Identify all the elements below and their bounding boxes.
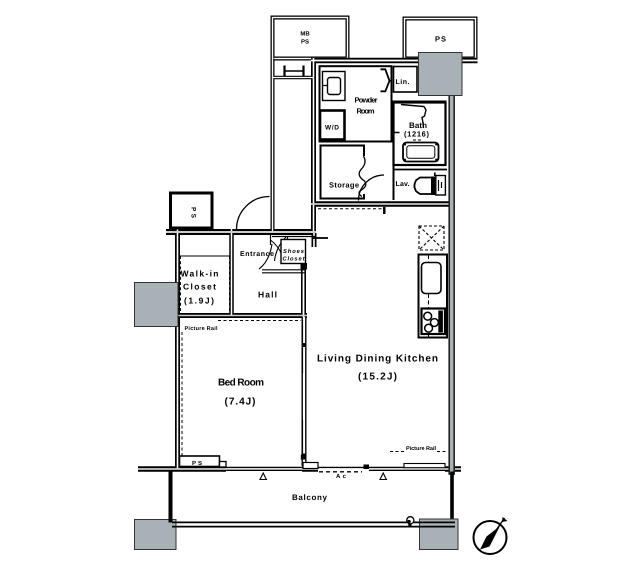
svg-text:Balcony: Balcony	[292, 493, 328, 502]
svg-text:(1216): (1216)	[404, 130, 430, 139]
svg-text:(15.2J): (15.2J)	[358, 372, 397, 383]
svg-text:Closet: Closet	[283, 256, 306, 263]
svg-text:PS: PS	[435, 35, 446, 44]
svg-text:Lin.: Lin.	[396, 78, 410, 86]
svg-text:Entrance: Entrance	[240, 251, 274, 258]
svg-text:PS: PS	[190, 207, 197, 219]
svg-text:Powder: Powder	[355, 96, 378, 105]
svg-text:Bed Room: Bed Room	[218, 378, 264, 389]
svg-text:Picture Rail: Picture Rail	[185, 326, 218, 332]
svg-text:Walk-in: Walk-in	[181, 269, 219, 279]
svg-text:Lav.: Lav.	[396, 181, 410, 188]
svg-text:Shoes: Shoes	[283, 248, 305, 255]
svg-text:Storage: Storage	[329, 181, 359, 190]
svg-text:PS: PS	[192, 460, 202, 467]
svg-text:PS: PS	[301, 39, 309, 46]
svg-text:Living Dining Kitchen: Living Dining Kitchen	[317, 354, 438, 365]
svg-text:Picture Rail: Picture Rail	[406, 446, 436, 452]
svg-text:(7.4J): (7.4J)	[225, 397, 256, 408]
svg-text:MB: MB	[300, 31, 310, 38]
svg-text:Room: Room	[357, 107, 375, 116]
svg-text:W/D: W/D	[325, 125, 339, 132]
svg-text:Hall: Hall	[258, 290, 277, 300]
